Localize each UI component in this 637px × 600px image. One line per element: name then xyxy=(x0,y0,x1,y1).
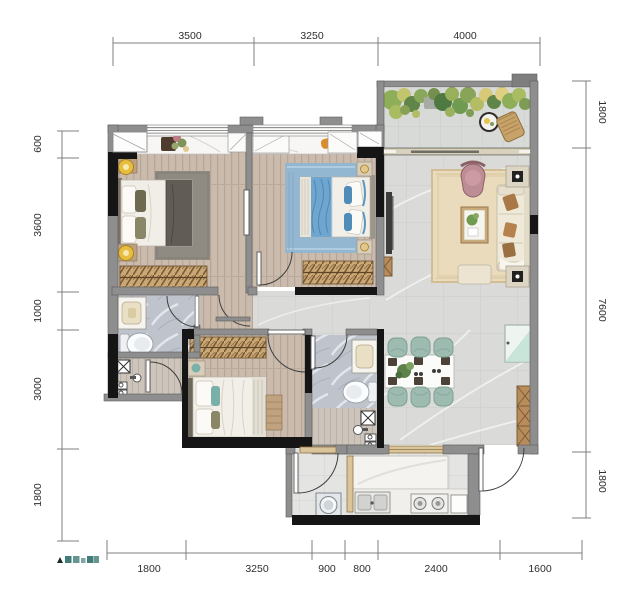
svg-text:800: 800 xyxy=(353,563,371,575)
svg-text:7600: 7600 xyxy=(596,298,608,322)
svg-text:900: 900 xyxy=(318,563,336,575)
svg-text:3500: 3500 xyxy=(178,30,202,42)
svg-text:2400: 2400 xyxy=(424,563,448,575)
svg-text:3600: 3600 xyxy=(32,213,44,237)
svg-text:1800: 1800 xyxy=(32,483,44,507)
svg-text:1800: 1800 xyxy=(596,469,608,493)
svg-text:3250: 3250 xyxy=(300,30,324,42)
svg-text:600: 600 xyxy=(32,135,44,153)
svg-text:4000: 4000 xyxy=(453,30,477,42)
svg-text:1000: 1000 xyxy=(32,299,44,323)
svg-text:3250: 3250 xyxy=(245,563,269,575)
svg-text:1800: 1800 xyxy=(137,563,161,575)
svg-text:1800: 1800 xyxy=(596,100,608,124)
svg-text:3000: 3000 xyxy=(32,377,44,401)
svg-text:1600: 1600 xyxy=(528,563,552,575)
